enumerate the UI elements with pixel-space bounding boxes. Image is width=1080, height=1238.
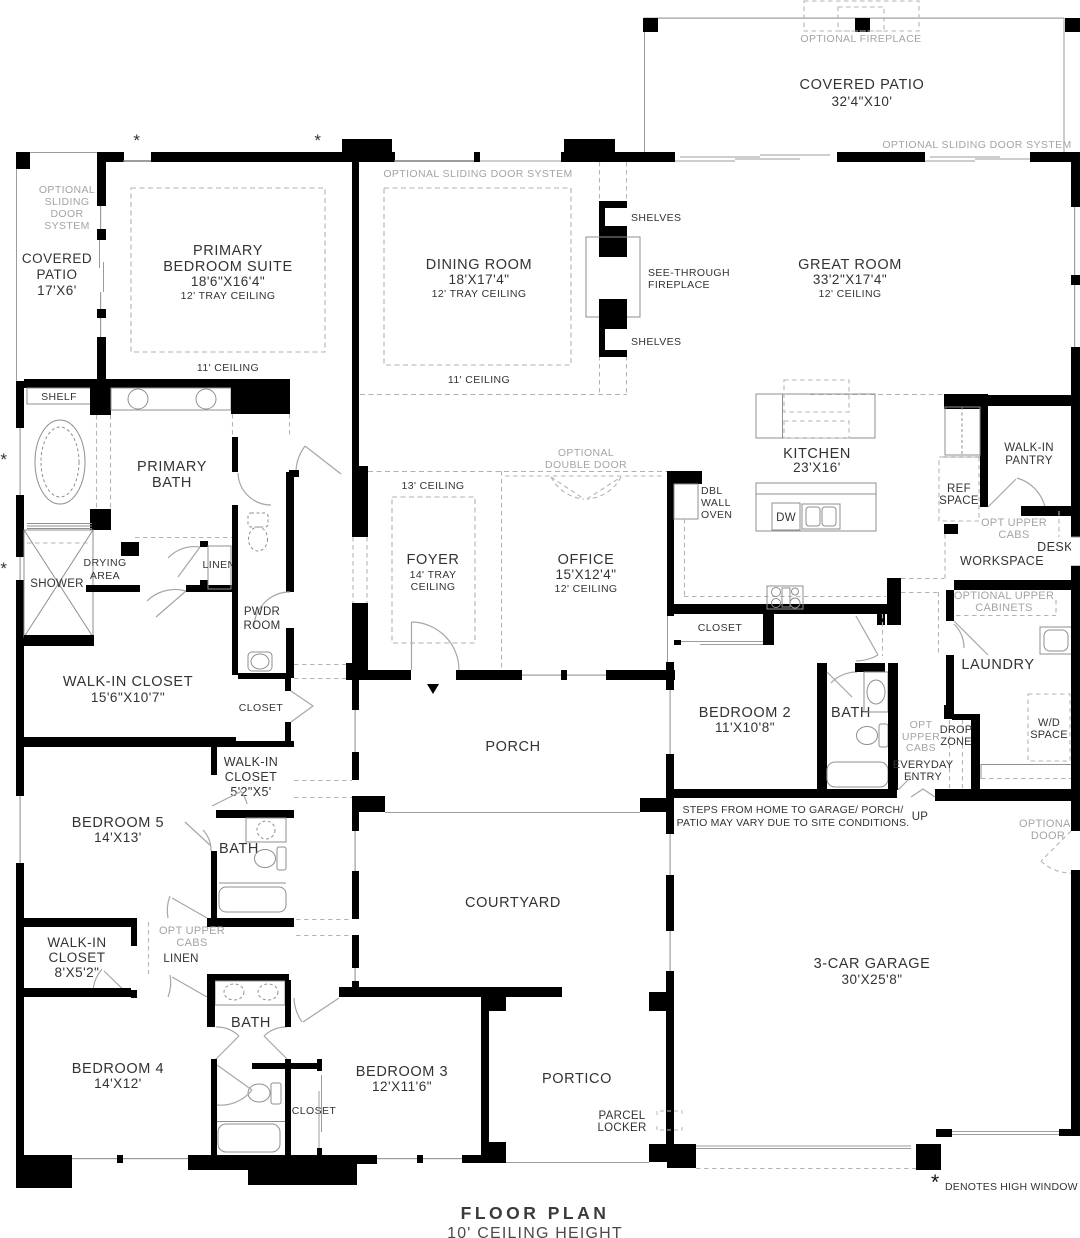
svg-text:OPTIONAL SLIDING DOOR SYSTEM: OPTIONAL SLIDING DOOR SYSTEM [383, 168, 572, 180]
svg-text:BEDROOM 3: BEDROOM 3 [356, 1064, 448, 1080]
svg-text:PORTICO: PORTICO [542, 1071, 612, 1087]
svg-text:FIREPLACE: FIREPLACE [648, 279, 710, 291]
svg-text:LINEN: LINEN [203, 559, 236, 571]
svg-text:DOUBLE DOOR: DOUBLE DOOR [545, 459, 627, 471]
svg-text:*: * [133, 131, 140, 150]
svg-text:14'X13': 14'X13' [94, 830, 142, 845]
svg-text:FOYER: FOYER [407, 552, 460, 568]
svg-text:WORKSPACE: WORKSPACE [960, 554, 1044, 568]
svg-text:CABS: CABS [176, 937, 207, 949]
svg-text:CLOSET: CLOSET [225, 770, 277, 784]
svg-text:DESK: DESK [1037, 540, 1073, 554]
svg-text:W/D: W/D [1038, 717, 1060, 729]
svg-text:3-CAR GARAGE: 3-CAR GARAGE [814, 956, 931, 972]
svg-text:14' TRAY: 14' TRAY [410, 569, 457, 581]
svg-text:14'X12': 14'X12' [94, 1076, 142, 1091]
svg-text:FLOOR PLAN: FLOOR PLAN [461, 1203, 610, 1223]
svg-text:BEDROOM SUITE: BEDROOM SUITE [163, 259, 292, 275]
svg-text:WALK-IN: WALK-IN [47, 935, 106, 950]
svg-text:UP: UP [912, 811, 929, 823]
svg-text:OPTIONAL UPPER: OPTIONAL UPPER [954, 590, 1054, 602]
svg-text:30'X25'8": 30'X25'8" [842, 972, 903, 987]
svg-text:CABS: CABS [998, 529, 1029, 541]
svg-text:ROOM: ROOM [244, 620, 281, 632]
svg-text:CABS: CABS [906, 742, 936, 754]
svg-text:SHOWER: SHOWER [30, 578, 84, 590]
svg-text:11' CEILING: 11' CEILING [197, 362, 259, 374]
svg-text:DBL: DBL [701, 485, 723, 497]
svg-text:18'X17'4": 18'X17'4" [449, 272, 510, 287]
svg-text:WALL: WALL [701, 497, 731, 509]
svg-text:OPT UPPER: OPT UPPER [981, 517, 1047, 529]
svg-text:BATH: BATH [219, 841, 259, 857]
svg-text:DENOTES HIGH WINDOW: DENOTES HIGH WINDOW [945, 1181, 1078, 1193]
svg-text:SLIDING: SLIDING [45, 196, 90, 208]
svg-text:LINEN: LINEN [163, 953, 198, 965]
svg-text:DRYING: DRYING [83, 557, 126, 569]
svg-text:11'X10'8": 11'X10'8" [715, 720, 775, 735]
svg-text:OVEN: OVEN [701, 509, 732, 521]
svg-text:COURTYARD: COURTYARD [465, 895, 561, 911]
svg-text:12' TRAY CEILING: 12' TRAY CEILING [432, 288, 527, 300]
svg-text:PATIO MAY VARY DUE TO SITE CON: PATIO MAY VARY DUE TO SITE CONDITIONS. [677, 817, 910, 829]
svg-text:OPTIONAL: OPTIONAL [1019, 818, 1077, 830]
svg-text:12' CEILING: 12' CEILING [554, 583, 617, 595]
svg-text:12' TRAY CEILING: 12' TRAY CEILING [181, 290, 276, 302]
svg-text:OFFICE: OFFICE [558, 552, 615, 568]
svg-text:BATH: BATH [831, 705, 871, 721]
svg-text:SHELVES: SHELVES [631, 212, 681, 224]
svg-text:5'2"X5': 5'2"X5' [230, 785, 271, 799]
svg-text:BATH: BATH [231, 1015, 271, 1031]
svg-text:SHELVES: SHELVES [631, 336, 681, 348]
svg-text:COVERED PATIO: COVERED PATIO [800, 77, 925, 93]
svg-text:11' CEILING: 11' CEILING [448, 374, 510, 386]
svg-text:CLOSET: CLOSET [698, 622, 743, 634]
svg-text:32'4"X10': 32'4"X10' [832, 94, 893, 109]
svg-text:OPTIONAL: OPTIONAL [39, 184, 95, 196]
svg-text:SYSTEM: SYSTEM [44, 220, 90, 232]
svg-text:*: * [931, 1171, 939, 1194]
svg-text:23'X16': 23'X16' [793, 460, 841, 475]
svg-text:CLOSET: CLOSET [48, 950, 105, 965]
svg-text:15'6"X10'7": 15'6"X10'7" [91, 690, 165, 705]
svg-text:13' CEILING: 13' CEILING [401, 480, 464, 492]
svg-text:PRIMARY: PRIMARY [193, 243, 263, 259]
svg-text:OPTIONAL FIREPLACE: OPTIONAL FIREPLACE [800, 33, 921, 45]
svg-text:DOOR: DOOR [1031, 830, 1065, 842]
svg-text:PRIMARY: PRIMARY [137, 459, 207, 475]
svg-text:33'2"X17'4": 33'2"X17'4" [813, 272, 887, 287]
svg-text:*: * [0, 559, 7, 578]
svg-text:AREA: AREA [90, 570, 120, 582]
svg-text:PANTRY: PANTRY [1005, 455, 1052, 467]
svg-text:LOCKER: LOCKER [597, 1122, 646, 1134]
svg-text:BEDROOM 2: BEDROOM 2 [699, 705, 791, 721]
svg-text:OPT: OPT [910, 719, 933, 731]
svg-text:15'X12'4": 15'X12'4" [556, 567, 617, 582]
svg-text:CLOSET: CLOSET [292, 1105, 337, 1117]
svg-text:GREAT ROOM: GREAT ROOM [798, 257, 902, 273]
svg-text:CLOSET: CLOSET [239, 702, 284, 714]
svg-text:SPACE: SPACE [1030, 729, 1067, 741]
svg-text:WALK-IN: WALK-IN [1004, 442, 1054, 454]
svg-text:17'X6': 17'X6' [37, 283, 77, 298]
svg-text:DOOR: DOOR [50, 208, 83, 220]
svg-text:ZONE: ZONE [940, 736, 971, 748]
svg-text:WALK-IN CLOSET: WALK-IN CLOSET [63, 674, 193, 690]
svg-text:OPTIONAL: OPTIONAL [558, 447, 614, 459]
svg-text:SEE-THROUGH: SEE-THROUGH [648, 267, 730, 279]
svg-text:DINING ROOM: DINING ROOM [426, 257, 533, 273]
svg-text:8'X5'2": 8'X5'2" [55, 965, 100, 980]
svg-text:*: * [314, 131, 321, 150]
svg-text:REF: REF [947, 483, 971, 495]
svg-text:CABINETS: CABINETS [975, 602, 1032, 614]
svg-text:DW: DW [776, 512, 796, 524]
svg-text:LAUNDRY: LAUNDRY [961, 657, 1034, 673]
svg-text:SHELF: SHELF [41, 391, 77, 403]
svg-text:12' CEILING: 12' CEILING [818, 288, 881, 300]
svg-text:EVERYDAY: EVERYDAY [893, 759, 954, 771]
svg-text:WALK-IN: WALK-IN [224, 755, 278, 769]
svg-text:PARCEL: PARCEL [599, 1110, 646, 1122]
svg-text:BEDROOM 4: BEDROOM 4 [72, 1061, 164, 1077]
svg-text:SPACE: SPACE [939, 495, 979, 507]
svg-text:BEDROOM 5: BEDROOM 5 [72, 815, 164, 831]
svg-text:18'6"X16'4": 18'6"X16'4" [191, 274, 265, 289]
svg-text:PWDR: PWDR [244, 606, 280, 618]
svg-text:OPTIONAL SLIDING DOOR SYSTEM: OPTIONAL SLIDING DOOR SYSTEM [882, 139, 1071, 151]
svg-text:BATH: BATH [152, 475, 192, 491]
svg-text:10' CEILING HEIGHT: 10' CEILING HEIGHT [447, 1225, 623, 1238]
svg-text:PORCH: PORCH [485, 739, 540, 755]
svg-text:ENTRY: ENTRY [904, 771, 943, 783]
svg-text:PATIO: PATIO [36, 267, 77, 282]
svg-text:STEPS FROM HOME TO GARAGE/ POR: STEPS FROM HOME TO GARAGE/ PORCH/ [683, 804, 904, 816]
svg-text:CEILING: CEILING [411, 581, 456, 593]
svg-text:OPT UPPER: OPT UPPER [159, 925, 225, 937]
svg-text:COVERED: COVERED [22, 251, 92, 266]
svg-text:DROP: DROP [940, 724, 973, 736]
svg-text:*: * [0, 450, 7, 469]
svg-text:12'X11'6": 12'X11'6" [372, 1079, 432, 1094]
